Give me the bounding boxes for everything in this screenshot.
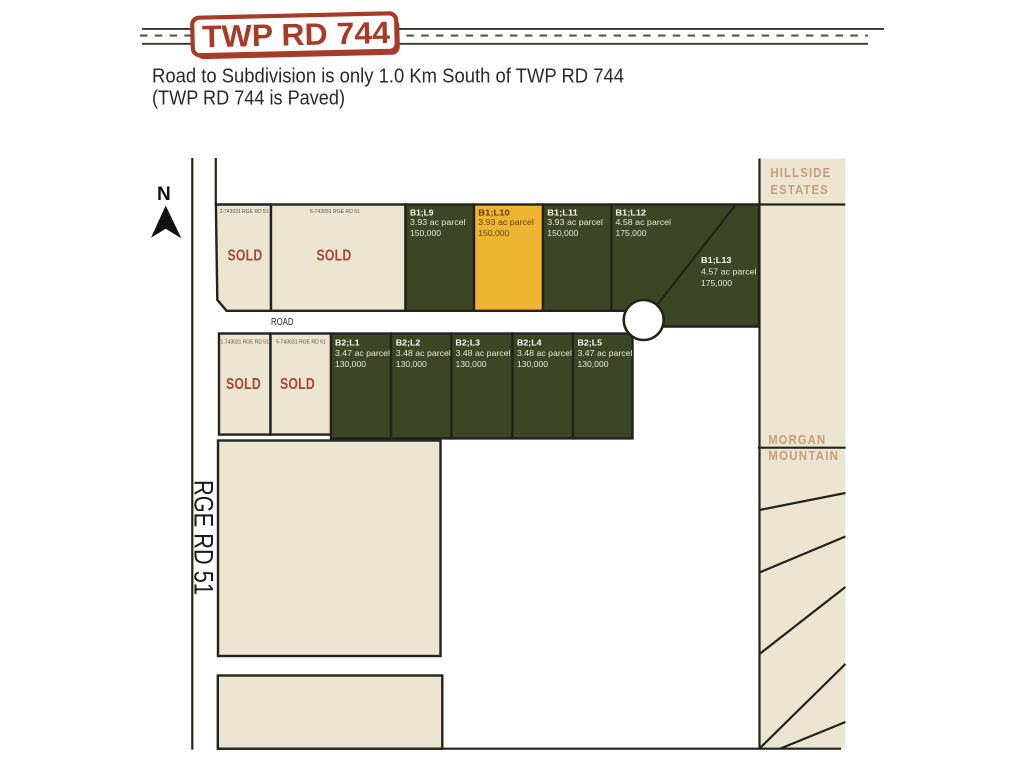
svg-text:Road to Subdivision is only 1.: Road to Subdivision is only 1.0 Km South… [152,65,624,87]
svg-text:130,000: 130,000 [335,359,366,369]
svg-text:B2;L4: B2;L4 [517,338,542,348]
svg-text:B1;L9: B1;L9 [410,208,434,218]
svg-text:130,000: 130,000 [578,359,609,369]
svg-text:175,000: 175,000 [701,278,732,288]
svg-text:150,000: 150,000 [547,228,578,238]
svg-text:TWP RD 744: TWP RD 744 [202,15,392,54]
svg-text:N: N [157,184,171,205]
svg-text:RGE RD 51: RGE RD 51 [189,480,219,595]
svg-text:150,000: 150,000 [410,228,441,238]
svg-text:1-743031 RGE RD 51: 1-743031 RGE RD 51 [221,339,269,345]
svg-text:3.48 ac parcel: 3.48 ac parcel [456,348,511,358]
svg-text:SOLD: SOLD [317,248,352,265]
svg-text:B1;L11: B1;L11 [547,208,578,218]
svg-text:3.48 ac parcel: 3.48 ac parcel [396,348,451,358]
svg-text:150,000: 150,000 [478,228,509,238]
svg-text:HILLSIDE: HILLSIDE [770,166,831,180]
svg-text:130,000: 130,000 [456,359,487,369]
svg-text:6-743031 RGE RD 51: 6-743031 RGE RD 51 [310,209,360,215]
svg-text:3.47 ac parcel: 3.47 ac parcel [578,348,633,358]
svg-text:3.93 ac parcel: 3.93 ac parcel [478,217,534,227]
svg-text:SOLD: SOLD [226,376,261,393]
svg-text:B2;L1: B2;L1 [335,338,360,348]
svg-text:B2;L5: B2;L5 [578,338,603,348]
svg-text:(TWP RD 744 is Paved): (TWP RD 744 is Paved) [152,87,345,109]
svg-text:3.47 ac parcel: 3.47 ac parcel [335,348,390,358]
svg-text:5-743031 RGE RD 51: 5-743031 RGE RD 51 [276,339,326,345]
svg-text:SOLD: SOLD [280,376,315,393]
svg-text:175,000: 175,000 [616,228,647,238]
svg-text:3.93 ac parcel: 3.93 ac parcel [410,217,466,227]
svg-text:MORGAN: MORGAN [768,433,826,447]
svg-text:B2;L2: B2;L2 [396,338,421,348]
svg-text:ESTATES: ESTATES [770,183,828,197]
svg-text:B1;L13: B1;L13 [701,255,732,265]
svg-text:B1;L10: B1;L10 [478,208,510,218]
svg-text:SOLD: SOLD [228,248,263,265]
svg-text:3.48 ac parcel: 3.48 ac parcel [517,348,572,358]
svg-text:ROAD: ROAD [271,317,294,328]
svg-text:MOUNTAIN: MOUNTAIN [768,449,839,463]
svg-text:4.57 ac parcel: 4.57 ac parcel [701,267,757,277]
svg-text:B2;L3: B2;L3 [456,338,481,348]
svg-text:4.58 ac parcel: 4.58 ac parcel [616,217,672,227]
svg-text:130,000: 130,000 [517,359,548,369]
svg-text:130,000: 130,000 [396,359,427,369]
svg-text:2-743031 RGE RD 51: 2-743031 RGE RD 51 [220,209,269,215]
svg-text:B1;L12: B1;L12 [616,208,647,218]
svg-text:3.93 ac parcel: 3.93 ac parcel [547,217,603,227]
